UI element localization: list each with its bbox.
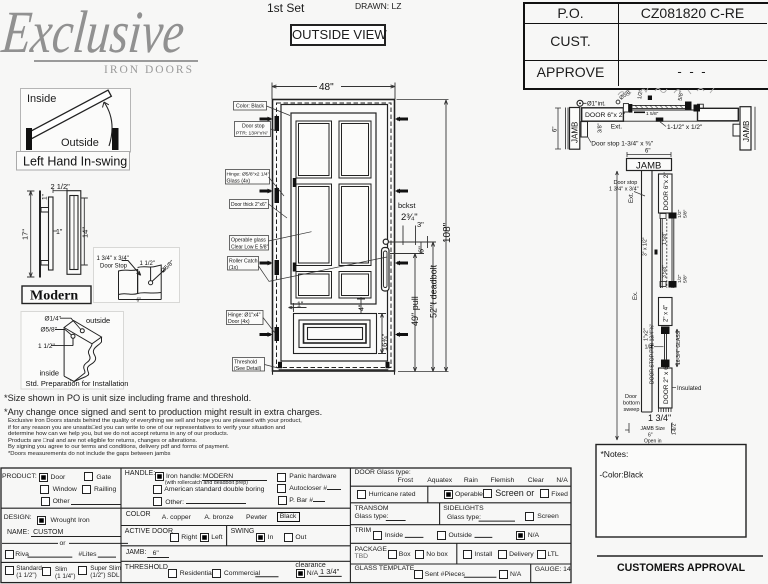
svg-text:Door stop: Door stop — [242, 124, 265, 130]
svg-text:4": 4" — [359, 304, 366, 311]
svg-text:Ø5/8": Ø5/8" — [41, 327, 58, 334]
svg-text:49" pull: 49" pull — [410, 296, 420, 326]
svg-text:Roller Catch: Roller Catch — [229, 259, 258, 265]
svg-text:DOOR 2" x 6": DOOR 2" x 6" — [663, 363, 670, 404]
svg-text:3 5/8": 3 5/8" — [662, 265, 668, 278]
svg-text:6": 6" — [417, 246, 426, 253]
svg-text:3": 3" — [417, 220, 424, 229]
svg-text:Std. Preparation for Installat: Std. Preparation for Installation — [26, 379, 129, 388]
svg-text:Insulated: Insulated — [677, 386, 701, 392]
svg-text:5/8": 5/8" — [683, 209, 689, 218]
svg-text:JAMB Size: JAMB Size — [641, 426, 666, 432]
svg-text:(1x): (1x) — [229, 265, 238, 271]
svg-text:1": 1" — [56, 229, 63, 236]
svg-text:16-3/4" GLASS: 16-3/4" GLASS — [676, 330, 682, 365]
svg-text:PTR: 13/4"x⅝": PTR: 13/4"x⅝" — [236, 131, 268, 137]
svg-text:Threshold: Threshold — [234, 360, 257, 366]
svg-text:JAMB: JAMB — [571, 122, 580, 143]
svg-text:Modern: Modern — [30, 289, 78, 304]
svg-text:14": 14" — [81, 227, 90, 238]
svg-text:52"ℓ deadbolt: 52"ℓ deadbolt — [429, 264, 439, 318]
svg-text:16¾": 16¾" — [380, 333, 389, 351]
svg-text:Door stop 1-3/4" x ⅜": Door stop 1-3/4" x ⅜" — [591, 141, 653, 148]
svg-text:1 1/2": 1 1/2" — [38, 343, 55, 350]
svg-text:Hinge: Ø5/8"x2 1/4": Hinge: Ø5/8"x2 1/4" — [227, 172, 270, 178]
svg-text:Door stop: Door stop — [614, 180, 638, 186]
svg-text:Hinge: Ø1"x4": Hinge: Ø1"x4" — [228, 313, 261, 319]
svg-text:bottom: bottom — [623, 401, 640, 407]
svg-text:6": 6" — [553, 127, 559, 132]
svg-text:JAMB: JAMB — [742, 121, 751, 142]
svg-text:Ext.: Ext. — [629, 192, 635, 203]
svg-text:3" x 1/2": 3" x 1/2" — [643, 237, 649, 256]
svg-text:Ext.: Ext. — [611, 124, 622, 131]
svg-text:sweep: sweep — [624, 407, 640, 413]
svg-text:Glass (4x): Glass (4x) — [227, 179, 251, 185]
svg-text:1/2": 1/2" — [677, 274, 683, 283]
svg-text:1 3/4" x 3/4": 1 3/4" x 3/4" — [97, 256, 129, 262]
svg-text:Ø1": Ø1" — [587, 101, 597, 107]
svg-text:48": 48" — [319, 82, 334, 93]
svg-text:2" x 4": 2" x 4" — [664, 305, 670, 322]
svg-text:Ø1/4": Ø1/4" — [45, 316, 62, 323]
svg-text:Ex.: Ex. — [633, 291, 639, 300]
svg-text:1-1/2": 1-1/2" — [672, 422, 678, 435]
svg-text:DOOR 6"x 2": DOOR 6"x 2" — [663, 172, 670, 211]
svg-text:17": 17" — [21, 229, 30, 240]
svg-text:1 3/4": 1 3/4" — [648, 413, 671, 423]
svg-text:Color: Black: Color: Black — [236, 104, 264, 110]
svg-text:2¾": 2¾" — [401, 212, 418, 223]
svg-text:Door: Door — [625, 394, 637, 400]
svg-text:6": 6" — [645, 149, 650, 155]
svg-text:inside: inside — [40, 369, 60, 378]
svg-text:Left Hand In-swing: Left Hand In-swing — [23, 155, 127, 169]
svg-text:int.: int. — [598, 101, 606, 107]
svg-text:JAMB: JAMB — [636, 161, 661, 172]
svg-text:Open in: Open in — [644, 439, 662, 445]
svg-text:bckst: bckst — [398, 201, 416, 210]
svg-text:1": 1" — [297, 302, 304, 309]
svg-text:Door (4x): Door (4x) — [228, 319, 250, 325]
svg-text:Operable glass: Operable glass — [231, 238, 266, 244]
svg-text:1": 1" — [42, 193, 49, 200]
svg-text:(See Detail): (See Detail) — [234, 366, 262, 372]
svg-text:5/8": 5/8" — [678, 91, 686, 102]
svg-text:-Color:Black: -Color:Black — [600, 471, 645, 480]
svg-text:Inside: Inside — [27, 93, 56, 105]
svg-text:CUSTOMERS APPROVAL: CUSTOMERS APPROVAL — [617, 562, 746, 574]
svg-text:1 5/8": 1 5/8" — [662, 232, 668, 245]
svg-text:1-1/2" x 1/2": 1-1/2" x 1/2" — [667, 124, 703, 131]
svg-text:outside: outside — [86, 316, 110, 325]
svg-text:1 5/8": 1 5/8" — [646, 111, 659, 117]
svg-text:Outside: Outside — [61, 137, 99, 149]
svg-text:6": 6" — [137, 298, 142, 304]
svg-text:Door Stop: Door Stop — [100, 264, 128, 270]
svg-text:5/8": 5/8" — [683, 274, 689, 283]
svg-text:Door thick 2"x6": Door thick 2"x6" — [231, 202, 267, 208]
svg-text:108": 108" — [442, 222, 453, 243]
svg-text:1 1/2": 1 1/2" — [140, 261, 155, 267]
svg-text:*Notes:: *Notes: — [601, 449, 629, 459]
svg-text:3/8": 3/8" — [598, 123, 604, 133]
svg-text:DOOR STOP PTR 13/4"⅜": DOOR STOP PTR 13/4"⅜" — [650, 324, 656, 384]
svg-text:Clear Low E 5/8": Clear Low E 5/8" — [231, 245, 269, 251]
svg-text:1/2": 1/2" — [677, 209, 683, 218]
svg-text:DOOR 6"x 2": DOOR 6"x 2" — [585, 112, 626, 119]
